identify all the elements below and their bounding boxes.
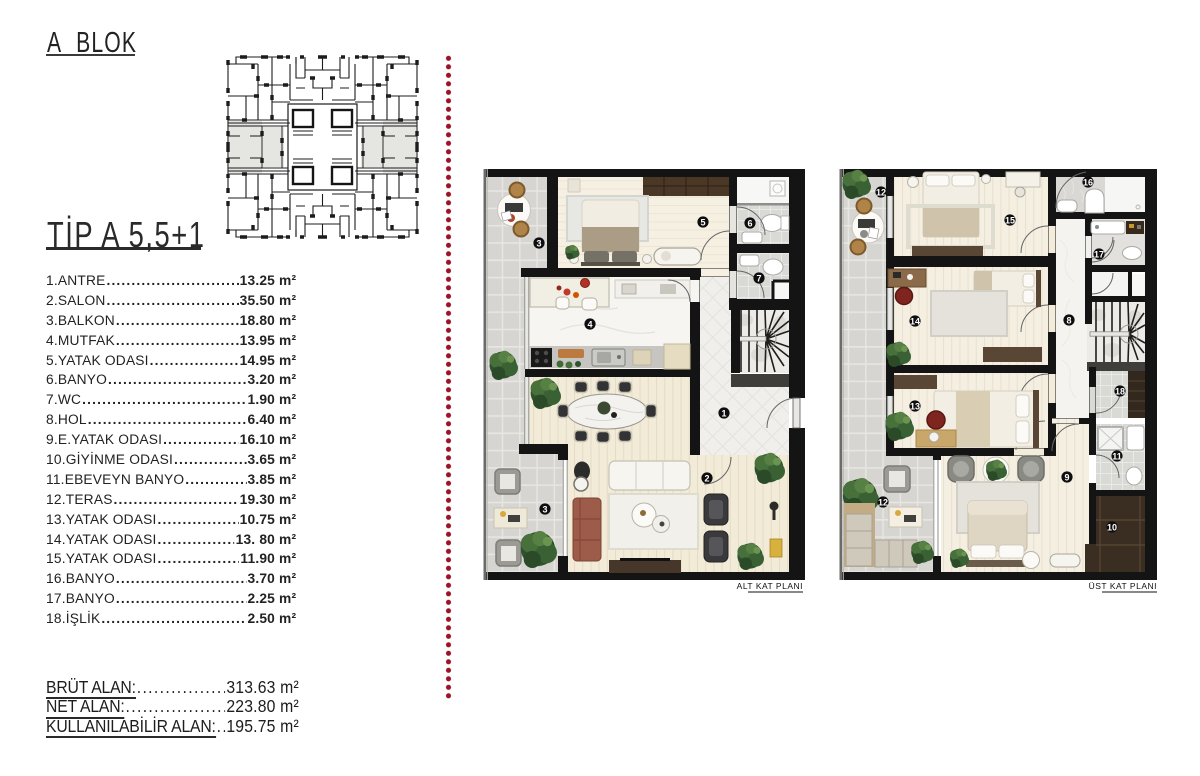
svg-text:10: 10 bbox=[1107, 522, 1117, 532]
svg-text:15: 15 bbox=[1005, 215, 1015, 225]
svg-text:ÜST KAT PLANI: ÜST KAT PLANI bbox=[1089, 581, 1157, 591]
svg-text:9: 9 bbox=[1064, 472, 1069, 482]
svg-text:8: 8 bbox=[1066, 315, 1071, 325]
svg-text:1: 1 bbox=[721, 408, 726, 418]
svg-text:13: 13 bbox=[910, 401, 920, 411]
svg-text:16: 16 bbox=[1083, 177, 1093, 187]
svg-text:ALT KAT PLANI: ALT KAT PLANI bbox=[737, 581, 803, 591]
svg-text:3: 3 bbox=[536, 238, 541, 248]
svg-text:11: 11 bbox=[1112, 451, 1122, 461]
svg-text:7: 7 bbox=[756, 273, 761, 283]
svg-text:12: 12 bbox=[876, 187, 886, 197]
svg-text:12: 12 bbox=[878, 497, 888, 507]
svg-text:3: 3 bbox=[542, 504, 547, 514]
svg-text:17: 17 bbox=[1094, 249, 1104, 259]
svg-text:2: 2 bbox=[704, 473, 709, 483]
svg-text:18: 18 bbox=[1115, 386, 1125, 396]
svg-text:6: 6 bbox=[747, 218, 752, 228]
svg-text:4: 4 bbox=[587, 319, 592, 329]
svg-text:14: 14 bbox=[910, 316, 920, 326]
svg-text:5: 5 bbox=[700, 217, 705, 227]
